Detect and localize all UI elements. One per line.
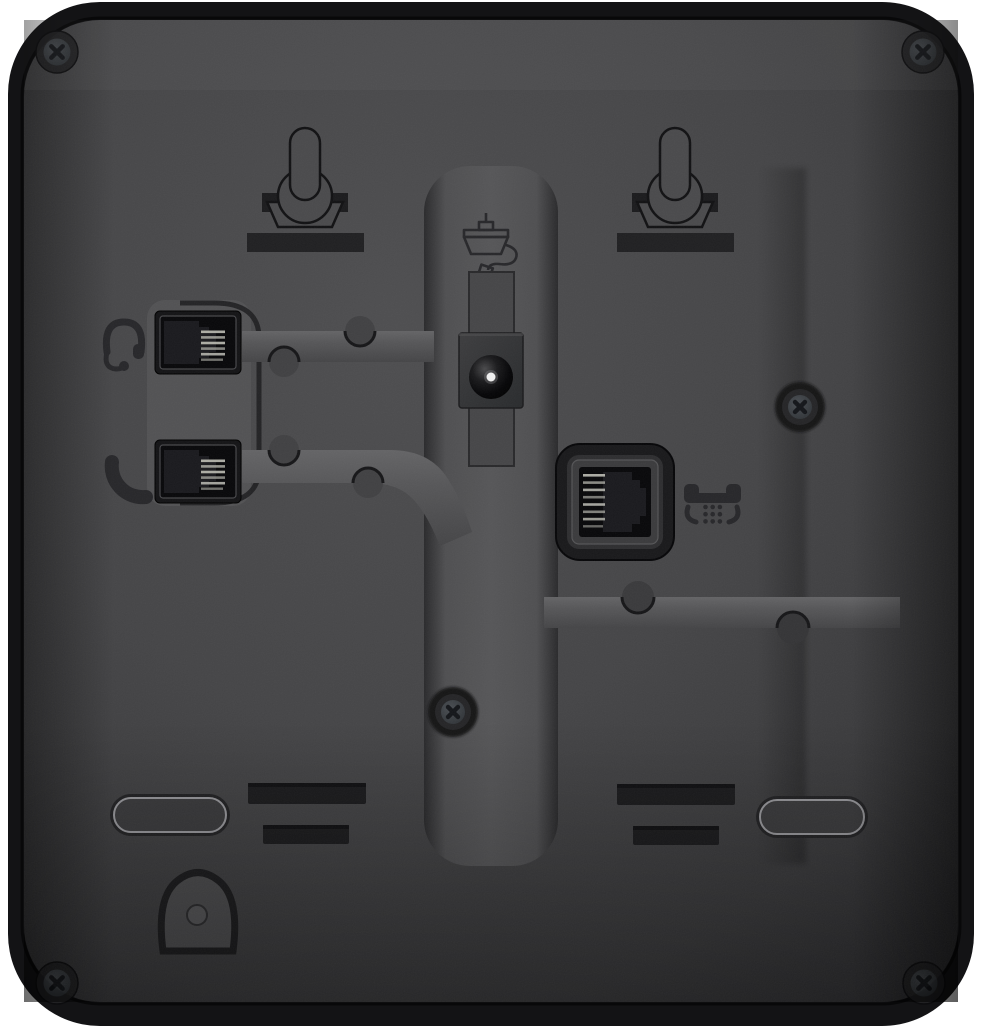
phone-rear-view (0, 0, 982, 1032)
rubber-foot-left (110, 794, 230, 836)
headset-jack-port (155, 311, 241, 374)
recessed-screw-right (775, 382, 825, 432)
corner-screw-bottom-left (36, 962, 78, 1004)
corner-screw-top-right (902, 31, 944, 73)
cable-hook-post (187, 905, 207, 925)
corner-screw-bottom-right (903, 962, 945, 1004)
cable-hook (161, 873, 235, 952)
phone-line-port (556, 444, 674, 560)
dc-center-pin (487, 373, 496, 382)
handset-jack-port (155, 440, 241, 503)
rubber-foot-right (756, 796, 868, 838)
product-photo-canvas (0, 0, 982, 1032)
dc-power-jack (459, 333, 523, 408)
recessed-screw-center (428, 687, 478, 737)
corner-screw-top-left (36, 31, 78, 73)
